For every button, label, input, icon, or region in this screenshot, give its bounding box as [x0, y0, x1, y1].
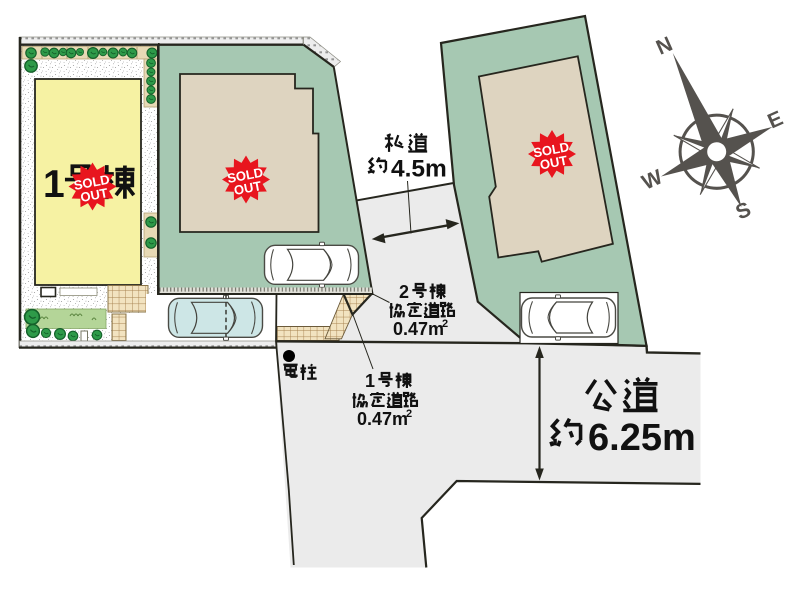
svg-text:2: 2: [399, 282, 409, 302]
svg-text:6.25m: 6.25m: [588, 417, 696, 459]
svg-text:S: S: [732, 198, 754, 225]
svg-text:4.5m: 4.5m: [391, 156, 447, 183]
svg-text:1: 1: [43, 163, 65, 206]
svg-text:W: W: [639, 165, 667, 194]
svg-text:2: 2: [442, 318, 448, 330]
svg-text:0.47m: 0.47m: [393, 319, 444, 339]
svg-text:0.47m: 0.47m: [357, 409, 408, 429]
svg-text:1: 1: [365, 371, 375, 391]
svg-text:N: N: [653, 32, 676, 59]
svg-text:2: 2: [406, 408, 412, 420]
